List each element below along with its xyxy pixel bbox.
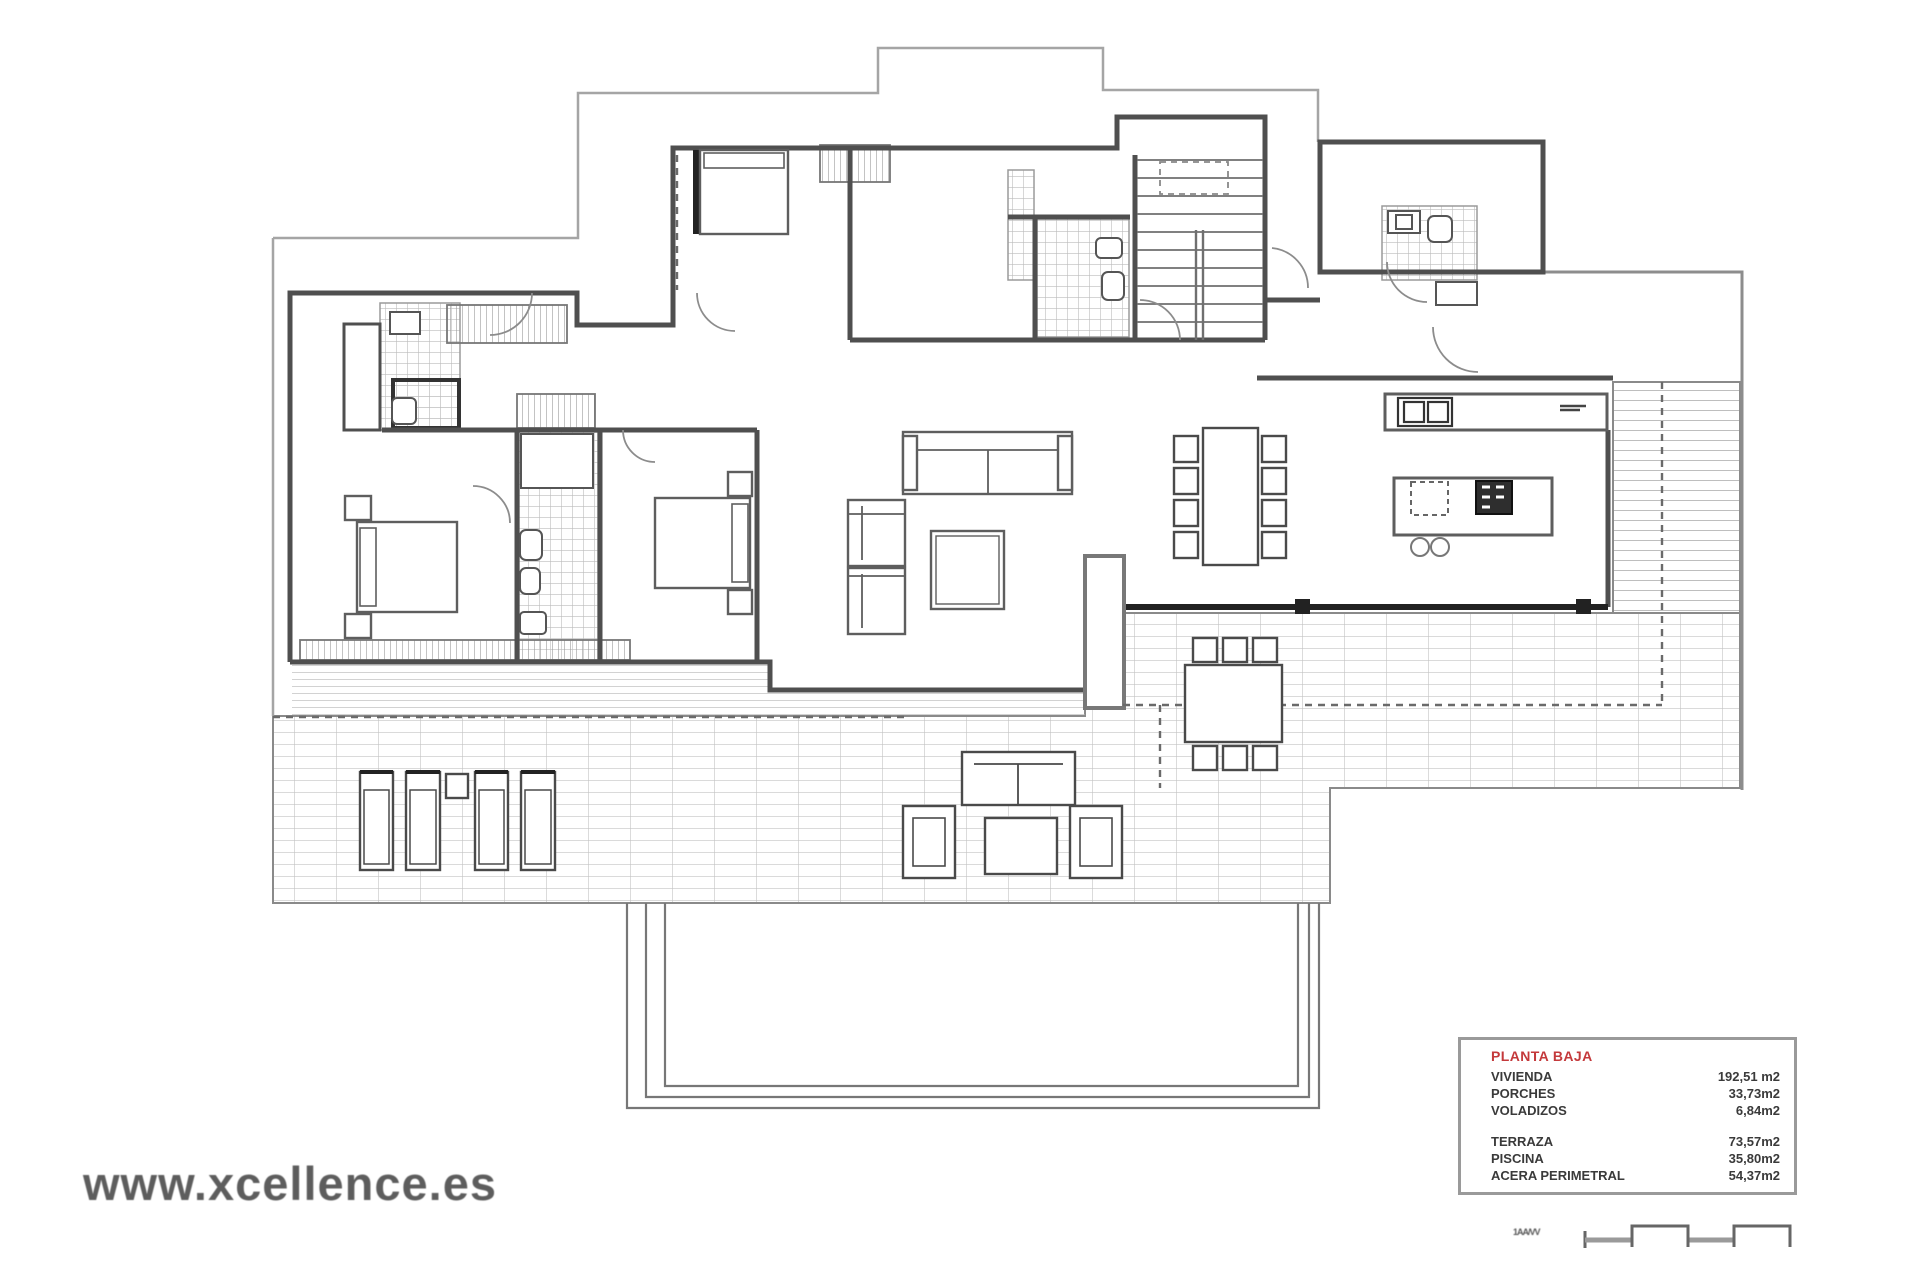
legend-value: 54,37m2 xyxy=(1729,1167,1780,1184)
wardrobe-strip xyxy=(447,305,567,343)
bed-left xyxy=(345,496,457,638)
bar-stool xyxy=(1431,538,1449,556)
armchair xyxy=(848,500,905,566)
legend-value: 35,80m2 xyxy=(1729,1150,1780,1167)
bar-stool xyxy=(1411,538,1429,556)
legend-row: TERRAZA 73,57m2 xyxy=(1491,1133,1780,1150)
legend-label: PISCINA xyxy=(1491,1150,1544,1167)
legend-value: 192,51 m2 xyxy=(1718,1068,1780,1085)
legend-label: ACERA PERIMETRAL xyxy=(1491,1167,1625,1184)
legend-row: PISCINA 35,80m2 xyxy=(1491,1150,1780,1167)
porch-dining-set xyxy=(1185,638,1282,770)
side-walkway xyxy=(1613,382,1740,613)
kitchen-island xyxy=(1394,478,1552,535)
sun-lounger xyxy=(475,772,508,870)
wardrobe-strip xyxy=(517,394,595,428)
master-shower-tiles xyxy=(1008,170,1034,280)
coffee-table xyxy=(931,531,1004,609)
legend-label: VOLADIZOS xyxy=(1491,1102,1567,1119)
legend-row: PORCHES 33,73m2 xyxy=(1491,1085,1780,1102)
sun-lounger xyxy=(406,772,440,870)
sun-lounger xyxy=(521,772,555,870)
kitchen-sink xyxy=(1398,398,1452,426)
outdoor-armchair xyxy=(1070,806,1122,878)
watermark: www.xcellence.es xyxy=(83,1156,497,1211)
sun-lounger xyxy=(360,772,393,870)
legend-row: VOLADIZOS 6,84m2 xyxy=(1491,1102,1780,1119)
scale-bar-label: 1AA/VV xyxy=(1513,1227,1540,1237)
bed-middle xyxy=(655,472,752,614)
legend-value: 33,73m2 xyxy=(1729,1085,1780,1102)
legend-row: ACERA PERIMETRAL 54,37m2 xyxy=(1491,1167,1780,1184)
wardrobe-strip xyxy=(300,640,630,660)
armchair xyxy=(848,568,905,634)
dining-table xyxy=(1203,428,1258,565)
outdoor-coffee-table xyxy=(985,818,1057,874)
legend-label: TERRAZA xyxy=(1491,1133,1553,1150)
outdoor-sofa xyxy=(962,752,1075,805)
terrace-stripe-band xyxy=(292,662,770,716)
legend-value: 73,57m2 xyxy=(1729,1133,1780,1150)
pool xyxy=(627,903,1319,1108)
staircase xyxy=(1137,160,1263,340)
kitchen xyxy=(1385,394,1607,556)
area-legend: PLANTA BAJA VIVIENDA 192,51 m2 PORCHES 3… xyxy=(1458,1037,1797,1195)
terrace-stripe-band-2 xyxy=(770,690,1085,716)
side-table xyxy=(446,774,468,798)
floor-plan-page: PLANTA BAJA VIVIENDA 192,51 m2 PORCHES 3… xyxy=(0,0,1920,1280)
sofa xyxy=(903,432,1072,494)
dining-set xyxy=(1174,428,1286,565)
outdoor-table xyxy=(1185,665,1282,742)
structural-pillar xyxy=(1085,556,1124,708)
wardrobe-strip xyxy=(820,145,890,182)
legend-title: PLANTA BAJA xyxy=(1491,1048,1780,1064)
scale-bar: 1AA/VV xyxy=(1505,1218,1815,1263)
bed-master xyxy=(700,150,788,234)
living-room xyxy=(848,432,1072,634)
legend-row: VIVIENDA 192,51 m2 xyxy=(1491,1068,1780,1085)
legend-label: PORCHES xyxy=(1491,1085,1555,1102)
legend-value: 6,84m2 xyxy=(1736,1102,1780,1119)
legend-label: VIVIENDA xyxy=(1491,1068,1552,1085)
outdoor-armchair xyxy=(903,806,955,878)
cooktop xyxy=(1476,481,1512,514)
